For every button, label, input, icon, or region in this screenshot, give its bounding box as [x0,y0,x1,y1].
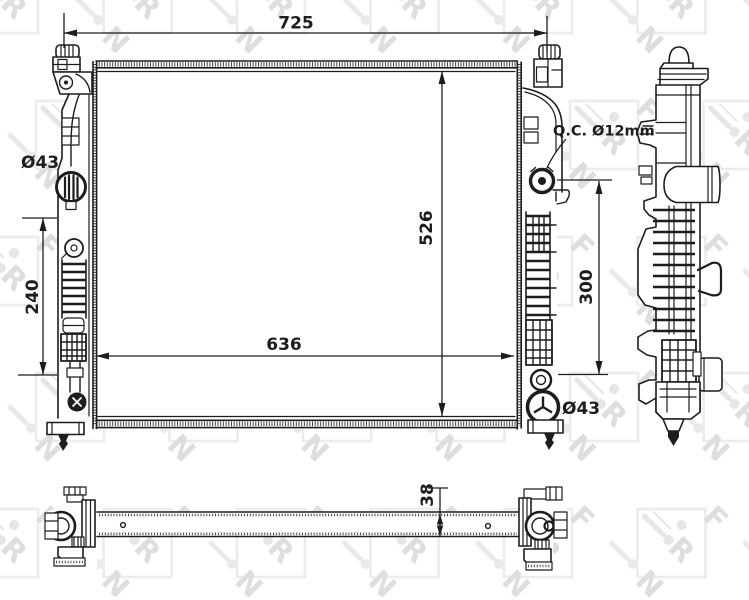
side-pipe-stub [639,166,720,203]
drawing-canvas: F R N [0,0,749,600]
dim-label-240: 240 [23,279,43,315]
left-bracket [53,72,92,94]
right-foot [528,420,563,450]
side-foot [656,382,700,446]
front-view [47,45,569,451]
dim-label-636: 636 [266,335,302,355]
left-grid-block [61,334,86,361]
dim-overall-width: 725 [64,13,547,52]
quick-connector-fitting [531,168,554,193]
right-sensor-boss [531,370,551,390]
dim-right-port-span: 300 [557,180,612,375]
outlet-port [528,392,559,423]
left-drain-plug [68,393,87,412]
dim-label-526: 526 [417,210,437,246]
dim-label-38: 38 [418,483,438,507]
radiator-technical-drawing: F R N [0,0,749,600]
dim-label-725: 725 [278,14,314,34]
dim-label-inlet-diameter: Ø43 [21,153,59,173]
dim-label-outlet-diameter: Ø43 [562,399,600,419]
dim-label-qc: Q.C. Ø12mm [553,124,655,140]
side-lower-grid [662,340,696,382]
left-mounting-pin [53,45,80,72]
bottom-right-connector [519,487,567,570]
right-mounting-pin [534,45,562,87]
right-grid-block [526,320,552,365]
dim-label-300: 300 [577,269,597,305]
